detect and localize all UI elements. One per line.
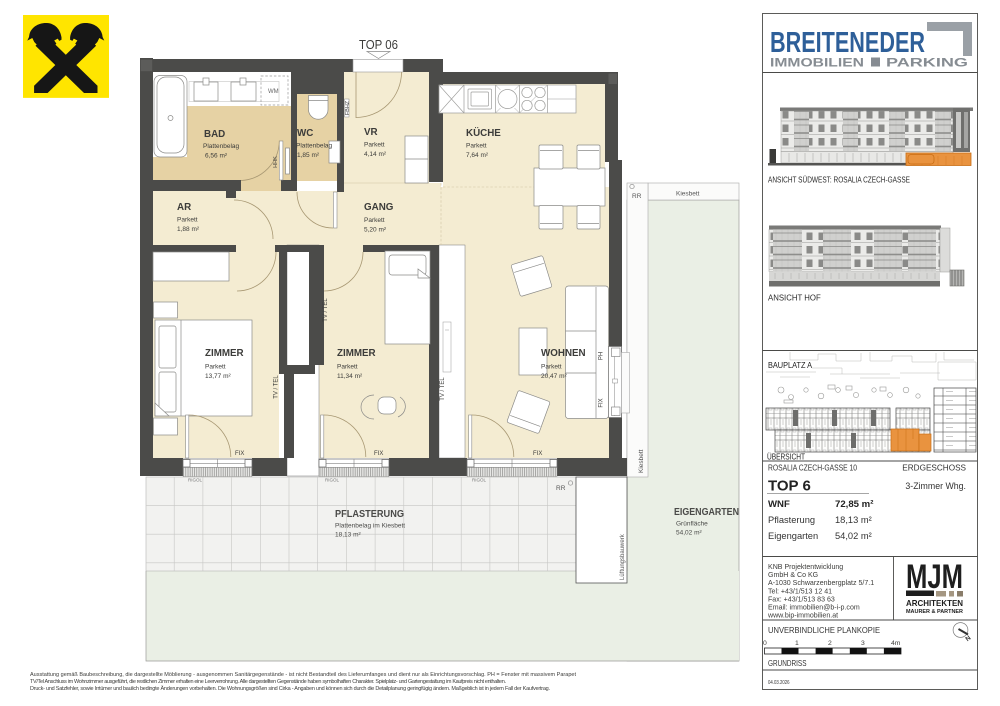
svg-text:1,85 m²: 1,85 m² [297, 152, 320, 159]
svg-text:Kiesbett: Kiesbett [676, 191, 700, 198]
svg-text:VR: VR [364, 127, 378, 138]
svg-text:WOHNEN: WOHNEN [541, 348, 586, 359]
svg-text:Parkett: Parkett [205, 364, 226, 371]
svg-text:Tel: +43/1/513 12 41: Tel: +43/1/513 12 41 [768, 588, 832, 595]
svg-text:FIX: FIX [235, 451, 244, 457]
svg-text:ARCHITEKTEN: ARCHITEKTEN [906, 598, 963, 608]
svg-text:MAURER & PARTNER: MAURER & PARTNER [906, 609, 963, 615]
svg-text:GRUNDRISS: GRUNDRISS [768, 658, 807, 668]
svg-text:WNF: WNF [768, 499, 790, 510]
svg-text:BAD: BAD [204, 129, 225, 140]
svg-text:6,56 m²: 6,56 m² [205, 153, 228, 160]
svg-text:7,64 m²: 7,64 m² [466, 152, 489, 159]
svg-text:13,77 m²: 13,77 m² [205, 373, 231, 380]
svg-text:KÜCHE: KÜCHE [466, 128, 501, 139]
svg-text:Parkett: Parkett [541, 364, 562, 371]
svg-text:3: 3 [861, 640, 865, 647]
svg-text:Ausstattung gemäß Baubeschreib: Ausstattung gemäß Baubeschreibung, die d… [30, 672, 576, 678]
svg-text:3-Zimmer Whg.: 3-Zimmer Whg. [905, 481, 966, 491]
svg-text:Lüftungsbauwerk: Lüftungsbauwerk [620, 533, 626, 580]
svg-text:Plattenbelag im Kiesbett: Plattenbelag im Kiesbett [335, 523, 405, 530]
svg-text:20,47 m²: 20,47 m² [541, 373, 567, 380]
svg-text:RR: RR [632, 193, 642, 200]
svg-text:RIGOL: RIGOL [325, 478, 340, 483]
svg-text:GANG: GANG [364, 202, 394, 213]
svg-text:GmbH & Co KG: GmbH & Co KG [768, 572, 818, 579]
svg-text:04.03.2026: 04.03.2026 [768, 680, 790, 686]
svg-text:54,02 m²: 54,02 m² [835, 531, 872, 541]
svg-text:Grünfläche: Grünfläche [676, 521, 708, 528]
svg-text:Parkett: Parkett [364, 217, 385, 224]
svg-text:WC: WC [297, 128, 313, 139]
svg-text:1: 1 [795, 640, 799, 647]
svg-text:TV / TEL: TV / TEL [440, 377, 446, 401]
svg-text:Parkett: Parkett [466, 143, 487, 150]
svg-text:TOP 06: TOP 06 [359, 37, 398, 52]
svg-text:4m: 4m [891, 640, 901, 647]
svg-text:ZIMMER: ZIMMER [205, 348, 244, 359]
svg-text:Plattenbelag: Plattenbelag [296, 143, 333, 150]
svg-text:RR: RR [556, 485, 566, 492]
svg-text:EIGENGARTEN: EIGENGARTEN [674, 506, 739, 518]
svg-text:PFLASTERUNG: PFLASTERUNG [335, 508, 404, 520]
svg-text:TOP 6: TOP 6 [768, 478, 811, 495]
svg-text:Fax: +43/1/513 83 63: Fax: +43/1/513 83 63 [768, 596, 835, 603]
svg-text:Email: immobilien@b-i-p.com: Email: immobilien@b-i-p.com [768, 605, 860, 612]
svg-text:72,85 m²: 72,85 m² [835, 499, 873, 510]
svg-text:Eigengarten: Eigengarten [768, 531, 818, 541]
svg-text:Pflasterung: Pflasterung [768, 515, 815, 525]
svg-text:BREITENEDER: BREITENEDER [770, 27, 925, 59]
svg-text:IMMOBILIEN: IMMOBILIEN [770, 56, 864, 70]
svg-text:RIGOL: RIGOL [472, 478, 487, 483]
svg-text:ÜBERSICHT: ÜBERSICHT [767, 452, 805, 462]
svg-text:ZIMMER: ZIMMER [337, 348, 376, 359]
svg-text:ANSICHT HOF: ANSICHT HOF [768, 294, 821, 303]
svg-text:0: 0 [763, 640, 767, 647]
svg-text:HHK: HHK [273, 156, 279, 168]
svg-text:WM: WM [268, 89, 279, 95]
svg-text:54,02 m²: 54,02 m² [676, 530, 702, 537]
svg-text:RIGOL: RIGOL [188, 478, 203, 483]
svg-text:FIX: FIX [374, 451, 383, 457]
svg-text:AR: AR [177, 202, 191, 213]
svg-text:18,13 m²: 18,13 m² [335, 532, 361, 539]
svg-text:4,14 m²: 4,14 m² [364, 151, 387, 158]
svg-text:Plattenbelag: Plattenbelag [203, 143, 240, 150]
svg-text:PH: PH [599, 352, 605, 360]
svg-text:Kiesbett: Kiesbett [638, 449, 645, 473]
svg-text:2: 2 [828, 640, 832, 647]
svg-text:Druck- und Satzfehler, sowie I: Druck- und Satzfehler, sowie Irrtümer un… [30, 685, 550, 692]
svg-text:Parkett: Parkett [177, 217, 198, 224]
svg-text:11,34 m²: 11,34 m² [337, 373, 363, 380]
svg-text:A-1030 Schwarzenbergplatz 5/7.: A-1030 Schwarzenbergplatz 5/7.1 [768, 580, 874, 587]
svg-text:TV / TEL: TV / TEL [323, 298, 329, 322]
svg-text:18,13 m²: 18,13 m² [835, 515, 872, 525]
svg-text:UNVERBINDLICHE PLANKOPIE: UNVERBINDLICHE PLANKOPIE [768, 626, 880, 635]
svg-text:FIX: FIX [533, 451, 542, 457]
svg-text:5,20 m²: 5,20 m² [364, 227, 387, 234]
svg-text:PARKING: PARKING [886, 56, 968, 70]
svg-text:FIX: FIX [599, 398, 605, 407]
svg-text:TV/Tel Anschluss im Wohnzimmer: TV/Tel Anschluss im Wohnzimmer ausgeführ… [30, 679, 506, 685]
svg-text:1,88 m²: 1,88 m² [177, 226, 200, 233]
svg-text:ERDGESCHOSS: ERDGESCHOSS [902, 464, 966, 473]
svg-text:FBHZ: FBHZ [345, 100, 351, 115]
svg-text:www.bip-immobilien.at: www.bip-immobilien.at [767, 613, 838, 620]
svg-text:MJM: MJM [906, 558, 963, 596]
svg-text:ANSICHT SÜDWEST: ROSALIA CZECH: ANSICHT SÜDWEST: ROSALIA CZECH-GASSE [768, 176, 910, 185]
svg-text:ROSALIA CZECH-GASSE 10: ROSALIA CZECH-GASSE 10 [768, 464, 857, 473]
svg-text:KNB Projektentwicklung: KNB Projektentwicklung [768, 564, 843, 571]
svg-text:TV / TEL: TV / TEL [274, 375, 280, 399]
svg-text:Parkett: Parkett [364, 142, 385, 149]
svg-text:Parkett: Parkett [337, 364, 358, 371]
svg-text:BAUPLATZ A: BAUPLATZ A [768, 361, 812, 370]
